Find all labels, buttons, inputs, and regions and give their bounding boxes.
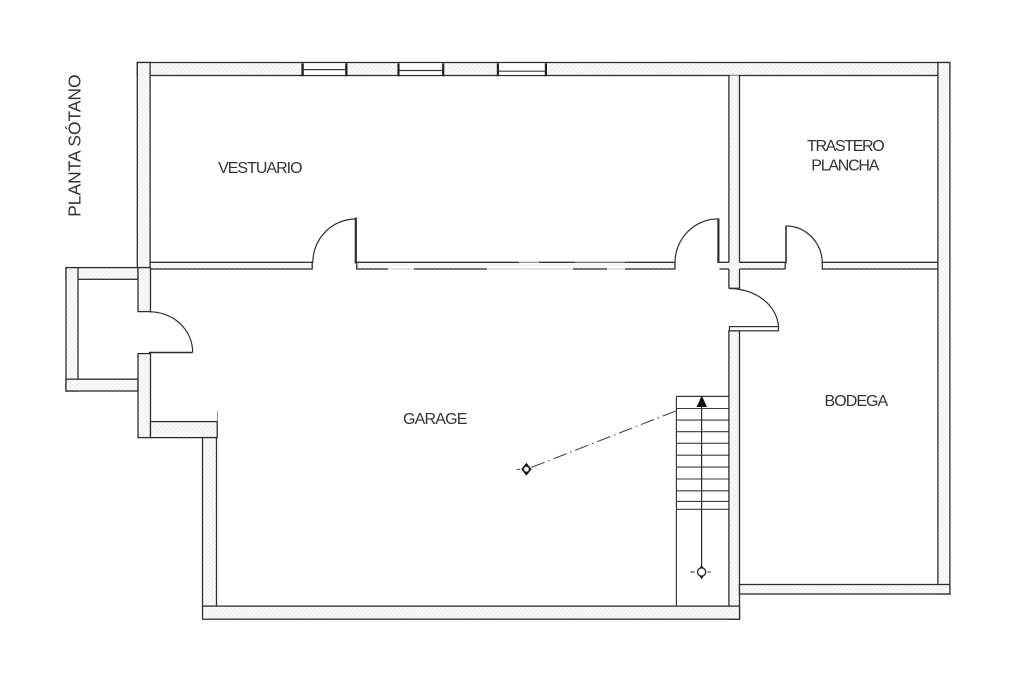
svg-text:PLANCHA: PLANCHA	[811, 158, 879, 175]
svg-text:TRASTERO: TRASTERO	[807, 138, 884, 155]
svg-text:GARAGE: GARAGE	[403, 411, 467, 428]
svg-text:PLANTA SÓTANO: PLANTA SÓTANO	[65, 74, 85, 216]
svg-text:BODEGA: BODEGA	[825, 393, 889, 410]
svg-text:VESTUARIO: VESTUARIO	[218, 160, 302, 177]
